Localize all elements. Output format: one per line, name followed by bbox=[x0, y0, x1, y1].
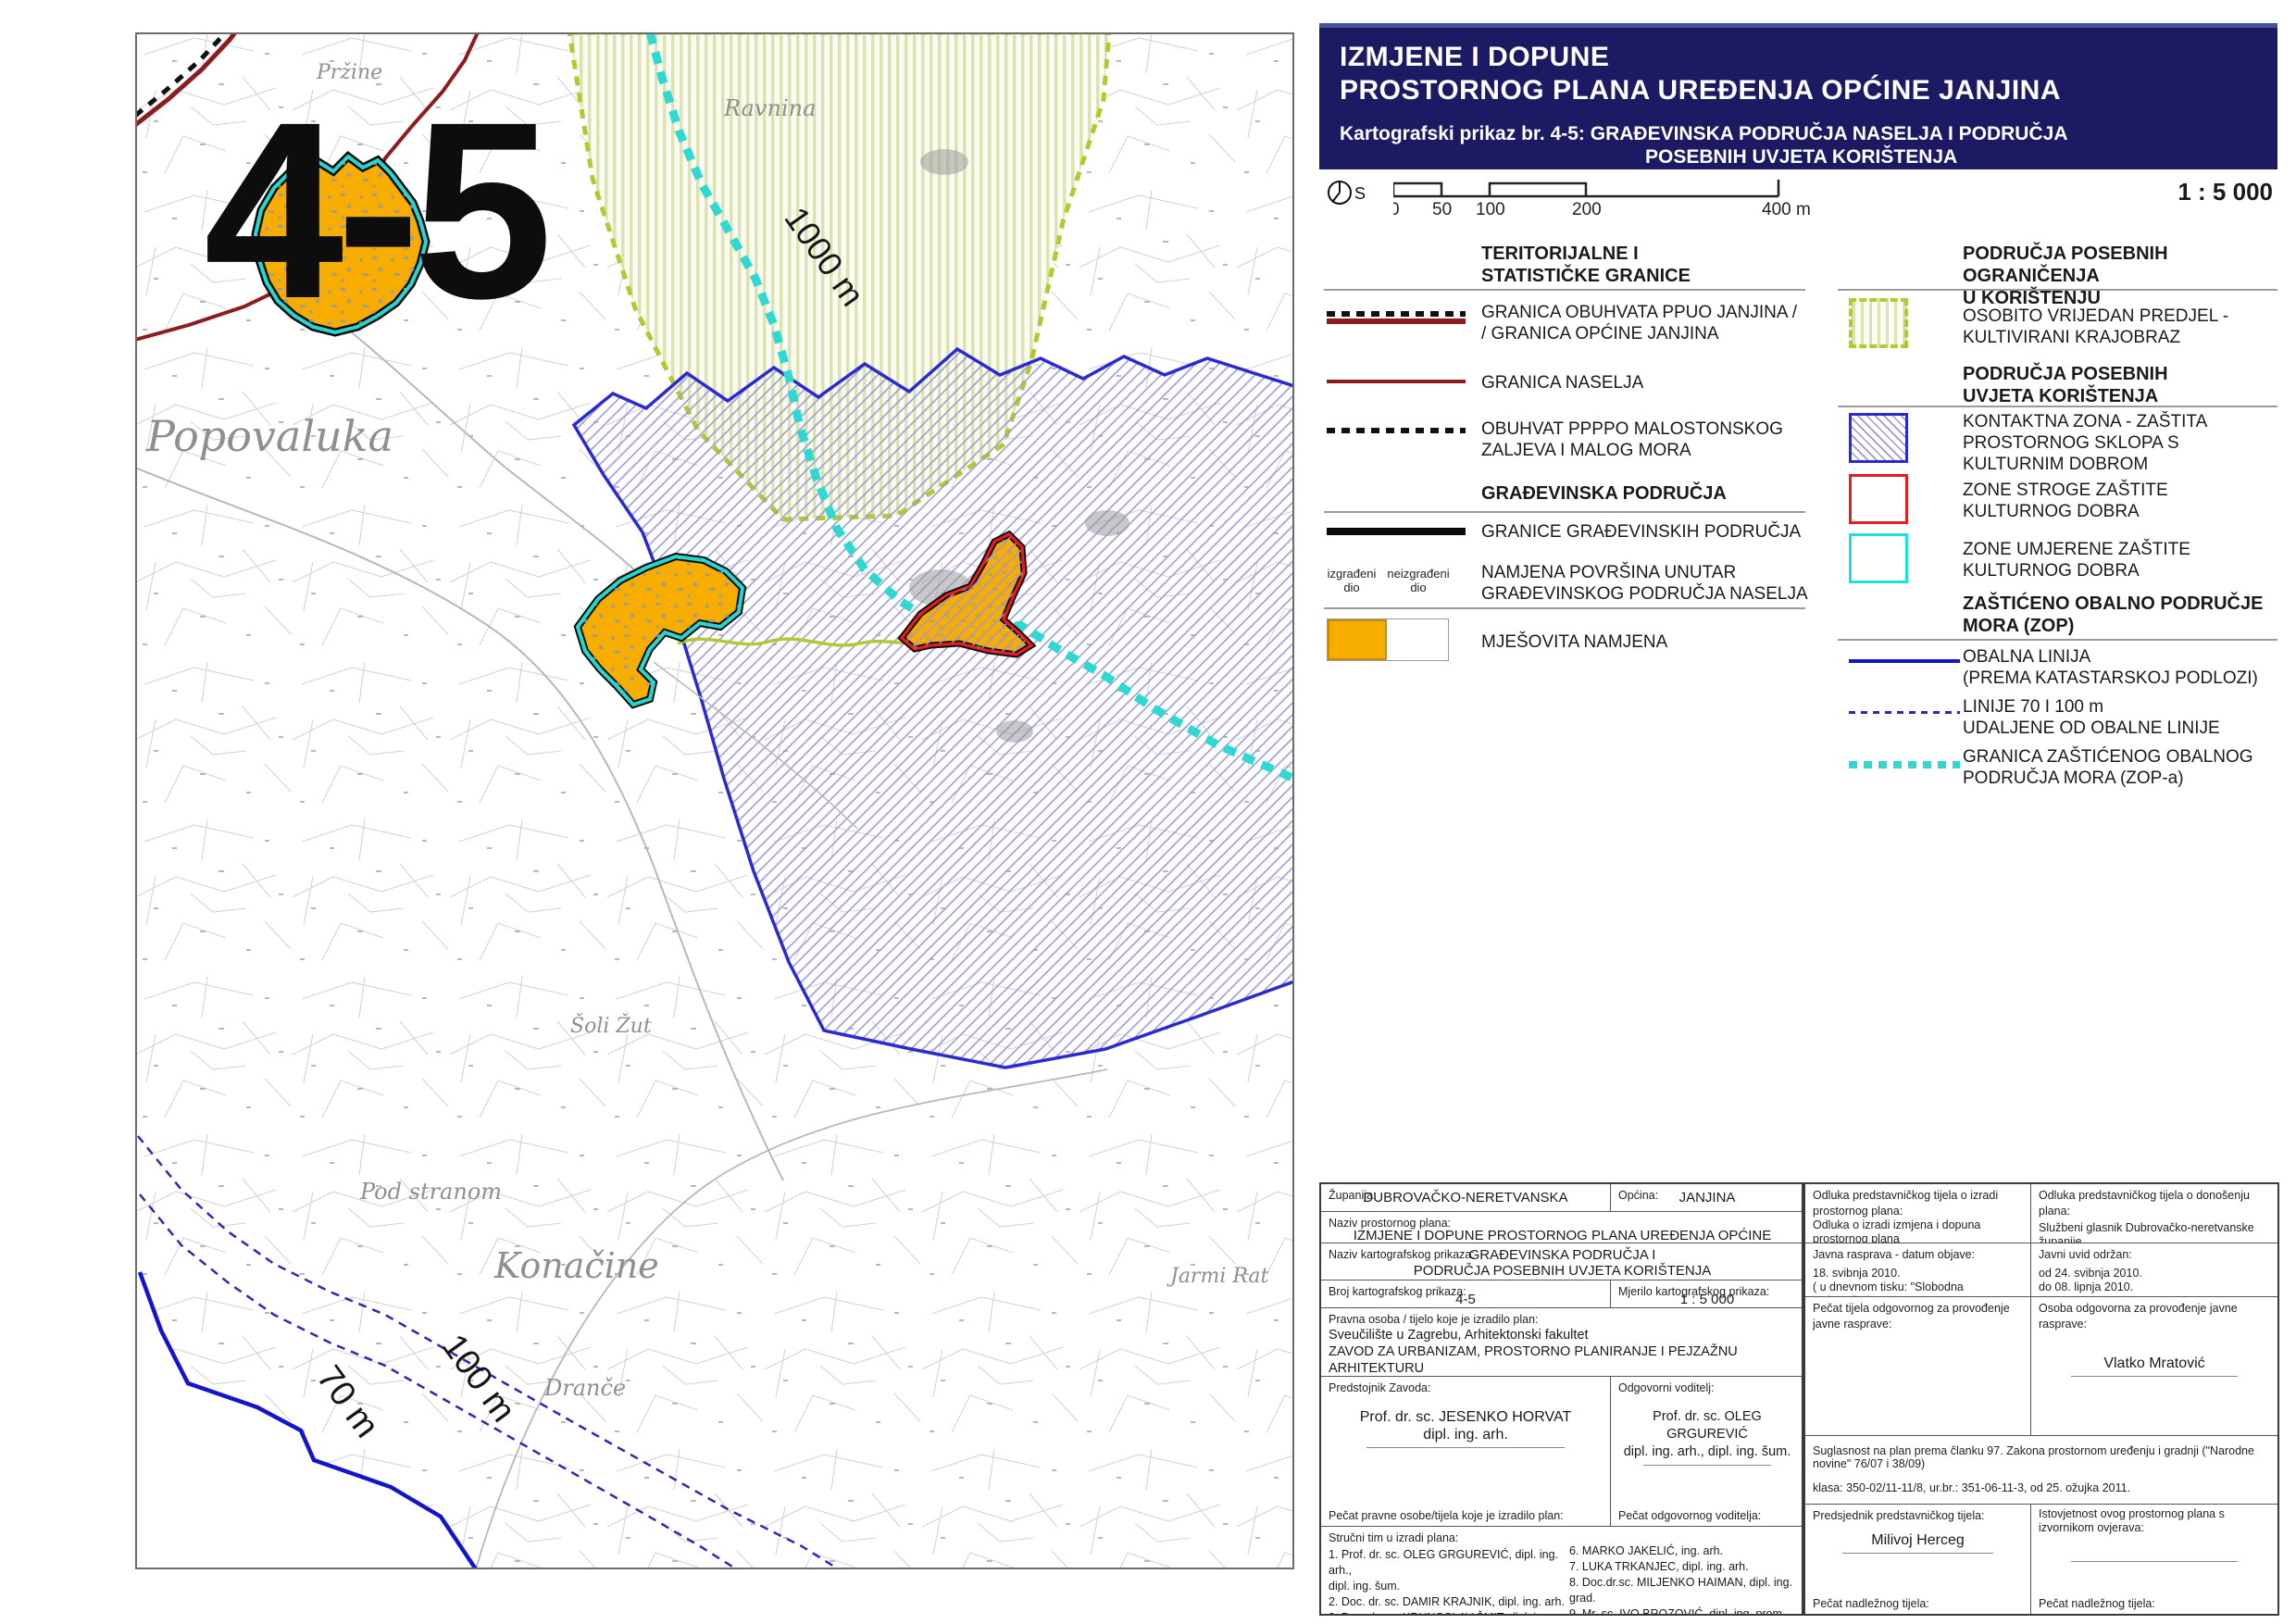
plan-title-line2: PROSTORNOG PLANA UREĐENJA OPĆINE JANJINA bbox=[1340, 74, 2277, 107]
legend-header-ogranicenja: PODRUČJA POSEBNIH OGRANIČENJA U KORIŠTEN… bbox=[1963, 243, 2279, 309]
built-part-label: izgrađeni dio bbox=[1321, 567, 1382, 594]
svg-text:400 m: 400 m bbox=[1762, 200, 1811, 219]
signature-line bbox=[1366, 1447, 1564, 1448]
title-block: IZMJENE I DOPUNE PROSTORNOG PLANA UREĐEN… bbox=[1319, 23, 2277, 169]
map-canvas: Pržine Ravnina Popovaluka Šoli Žut Pod s… bbox=[135, 32, 1294, 1569]
signatory-name: Vlatko Mratović bbox=[2039, 1355, 2270, 1372]
signatory-name: Prof. dr. sc. OLEG GRGUREVIĆ dipl. ing. … bbox=[1618, 1408, 1796, 1461]
plan-subtitle-line1: Kartografski prikaz br. 4-5: GRAĐEVINSKA… bbox=[1340, 122, 2277, 146]
legend-label: GRANICE GRAĐEVINSKIH PODRUČJA bbox=[1481, 521, 1801, 543]
legend-label: ZONE STROGE ZAŠTITE KULTURNOG DOBRA bbox=[1963, 480, 2168, 522]
label: Pečat pravne osobe/tijela koje je izradi… bbox=[1329, 1509, 1564, 1522]
label: Osoba odgovorna za provođenje javne rasp… bbox=[2039, 1302, 2238, 1330]
value: 18. svibnja 2010. ( u dnevnom tisku: "Sl… bbox=[1813, 1267, 2023, 1296]
mjesovita-namjena-symbol bbox=[1327, 618, 1449, 661]
label: Predstojnik Zavoda: bbox=[1329, 1381, 1430, 1394]
north-icon: S bbox=[1325, 172, 1373, 213]
place-label: Ravnina bbox=[723, 95, 816, 121]
table-left-half: Županija: DUBROVAČKO-NERETVANSKA Općina:… bbox=[1319, 1182, 1803, 1616]
label: Odgovorni voditelj: bbox=[1618, 1381, 1715, 1394]
legend-label: GRANICA OBUHVATA PPUO JANJINA / / GRANIC… bbox=[1481, 302, 1797, 344]
umjerene-zastite-symbol bbox=[1849, 533, 1908, 583]
divider bbox=[1838, 289, 2277, 291]
divider bbox=[1838, 406, 2277, 407]
signature-line bbox=[2071, 1561, 2238, 1562]
place-label: Konačine bbox=[493, 1245, 659, 1286]
signature-line bbox=[1842, 1553, 1993, 1554]
legend-label: OSOBITO VRIJEDAN PREDJEL - KULTIVIRANI K… bbox=[1963, 306, 2228, 348]
value: od 24. svibnja 2010. do 08. lipnja 2010. bbox=[2039, 1267, 2270, 1294]
legend-panel: IZMJENE I DOPUNE PROSTORNOG PLANA UREĐEN… bbox=[1319, 0, 2279, 1624]
legend-header-gradevinska: GRAĐEVINSKA PODRUČJA bbox=[1481, 482, 1727, 505]
divider bbox=[1838, 639, 2277, 641]
place-label: Dranče bbox=[543, 1375, 626, 1401]
signatory-name: Prof. dr. sc. JESENKO HORVAT dipl. ing. … bbox=[1329, 1408, 1603, 1443]
label: Odluka predstavničkog tijela o donošenju… bbox=[2039, 1189, 2250, 1218]
label: Općina: bbox=[1618, 1189, 1658, 1202]
svg-text:200: 200 bbox=[1572, 200, 1602, 219]
legend-label: NAMJENA POVRŠINA UNUTAR GRAĐEVINSKOG POD… bbox=[1481, 562, 1808, 605]
legend-label: OBUHVAT PPPPO MALOSTONSKOG ZALJEVA I MAL… bbox=[1481, 418, 1783, 461]
table-right-half: Odluka predstavničkog tijela o izradi pr… bbox=[1803, 1182, 2279, 1616]
label: Javni uvid održan: bbox=[2039, 1248, 2132, 1261]
obalna-linija-symbol bbox=[1849, 659, 1960, 663]
plan-subtitle-line2: POSEBNIH UVJETA KORIŠTENJA bbox=[1645, 146, 2277, 169]
label: Predsjednik predstavničkog tijela: bbox=[1813, 1509, 1985, 1522]
legend-label: KONTAKTNA ZONA - ZAŠTITA PROSTORNOG SKLO… bbox=[1963, 411, 2207, 475]
divider bbox=[1324, 511, 1805, 513]
legend-label: LINIJE 70 I 100 m UDALJENE OD OBALNE LIN… bbox=[1963, 696, 2220, 739]
divider bbox=[1324, 607, 1805, 609]
sheet-number: 4-5 bbox=[204, 69, 546, 351]
approval-table: Županija: DUBROVAČKO-NERETVANSKA Općina:… bbox=[1319, 1182, 2279, 1616]
klasa-text: klasa: 350-02/11-11/8, ur.br.: 351-06-11… bbox=[1813, 1481, 2270, 1494]
kontaktna-zona-symbol bbox=[1849, 413, 1908, 463]
label: Naziv kartografskog prikaza: bbox=[1329, 1248, 1475, 1261]
zop-granica-symbol bbox=[1849, 761, 1960, 768]
legend-header-zop: ZAŠTIĆENO OBALNO PODRUČJE MORA (ZOP) bbox=[1963, 593, 2263, 637]
krajobraz-symbol bbox=[1849, 298, 1908, 348]
signature-line bbox=[1643, 1465, 1771, 1466]
svg-text:0: 0 bbox=[1393, 200, 1400, 219]
signature-line bbox=[2071, 1376, 2238, 1377]
value: Odluka o izradi izmjena i dopuna prostor… bbox=[1813, 1218, 2023, 1243]
svg-text:50: 50 bbox=[1432, 200, 1452, 219]
scale-ratio: 1 : 5 000 bbox=[2115, 178, 2273, 206]
legend-label: GRANICA ZAŠTIĆENOG OBALNOG PODRUČJA MORA… bbox=[1963, 746, 2253, 789]
label: Pravna osoba / tijelo koje je izradilo p… bbox=[1329, 1313, 1539, 1326]
label: Stručni tim u izradi plana: bbox=[1329, 1531, 1458, 1544]
label: Odluka predstavničkog tijela o izradi pr… bbox=[1813, 1189, 1998, 1218]
place-label: Pod stranom bbox=[359, 1179, 502, 1205]
plan-sheet: Pržine Ravnina Popovaluka Šoli Žut Pod s… bbox=[0, 0, 2296, 1624]
label: Pečat nadležnog tijela: bbox=[2039, 1597, 2155, 1610]
label: Broj kartografskog prikaza: bbox=[1329, 1285, 1466, 1298]
legend-label: ZONE UMJERENE ZAŠTITE KULTURNOG DOBRA bbox=[1963, 539, 2190, 581]
label: Javna rasprava - datum objave: bbox=[1813, 1248, 1975, 1261]
obuhvat-ppppo-symbol bbox=[1327, 428, 1466, 433]
plan-title-line1: IZMJENE I DOPUNE bbox=[1340, 41, 2277, 74]
value: Sveučilište u Zagrebu, Arhitektonski fak… bbox=[1329, 1327, 1796, 1376]
granica-naselja-symbol bbox=[1327, 380, 1466, 383]
label: Pečat tijela odgovornog za provođenje ja… bbox=[1813, 1302, 2010, 1330]
scale-bar: 0 50 100 200 400 m bbox=[1393, 169, 1856, 220]
team-list-left: 1. Prof. dr. sc. OLEG GRGUREVIĆ, dipl. i… bbox=[1329, 1547, 1565, 1614]
value: DUBROVAČKO-NERETVANSKA bbox=[1329, 1190, 1603, 1206]
place-label: Popovaluka bbox=[145, 411, 393, 461]
place-label: Šoli Žut bbox=[570, 1013, 652, 1038]
legend-label: OBALNA LINIJA (PREMA KATASTARSKOJ PODLOZ… bbox=[1963, 646, 2258, 689]
divider bbox=[1324, 289, 1805, 291]
unbuilt-part-label: neizgrađeni dio bbox=[1386, 567, 1451, 594]
label: Istovjetnost ovog prostornog plana s izv… bbox=[2039, 1507, 2270, 1535]
value: IZMJENE I DOPUNE PROSTORNOG PLANA UREĐEN… bbox=[1329, 1228, 1796, 1243]
linije-70-100-symbol bbox=[1849, 711, 1960, 714]
svg-text:S: S bbox=[1354, 184, 1366, 203]
team-list-right: 6. MARKO JAKELIĆ, ing. arh. 7. LUKA TRKA… bbox=[1569, 1543, 1801, 1614]
stroge-zastite-symbol bbox=[1849, 474, 1908, 524]
legend-header-territorial: TERITORIJALNE I STATISTIČKE GRANICE bbox=[1481, 243, 1691, 287]
legend-label: GRANICA NASELJA bbox=[1481, 372, 1643, 394]
granice-gradevinskih-symbol bbox=[1327, 528, 1466, 535]
granica-obuhvata-symbol bbox=[1327, 311, 1466, 324]
signatory-name: Milivoj Herceg bbox=[1813, 1532, 2023, 1549]
label: Pečat odgovornog voditelja: bbox=[1618, 1509, 1761, 1522]
svg-text:100: 100 bbox=[1476, 200, 1505, 219]
label: Pečat nadležnog tijela: bbox=[1813, 1597, 1929, 1610]
value: Službeni glasnik Dubrovačko-neretvanske … bbox=[2039, 1221, 2270, 1243]
legend-header-uvjeta: PODRUČJA POSEBNIH UVJETA KORIŠTENJA bbox=[1963, 363, 2168, 407]
suglasnost-text: Suglasnost na plan prema članku 97. Zako… bbox=[1813, 1444, 2270, 1470]
place-label: Jarmi Rat bbox=[1167, 1265, 1269, 1288]
legend-label: MJEŠOVITA NAMJENA bbox=[1481, 631, 1667, 653]
